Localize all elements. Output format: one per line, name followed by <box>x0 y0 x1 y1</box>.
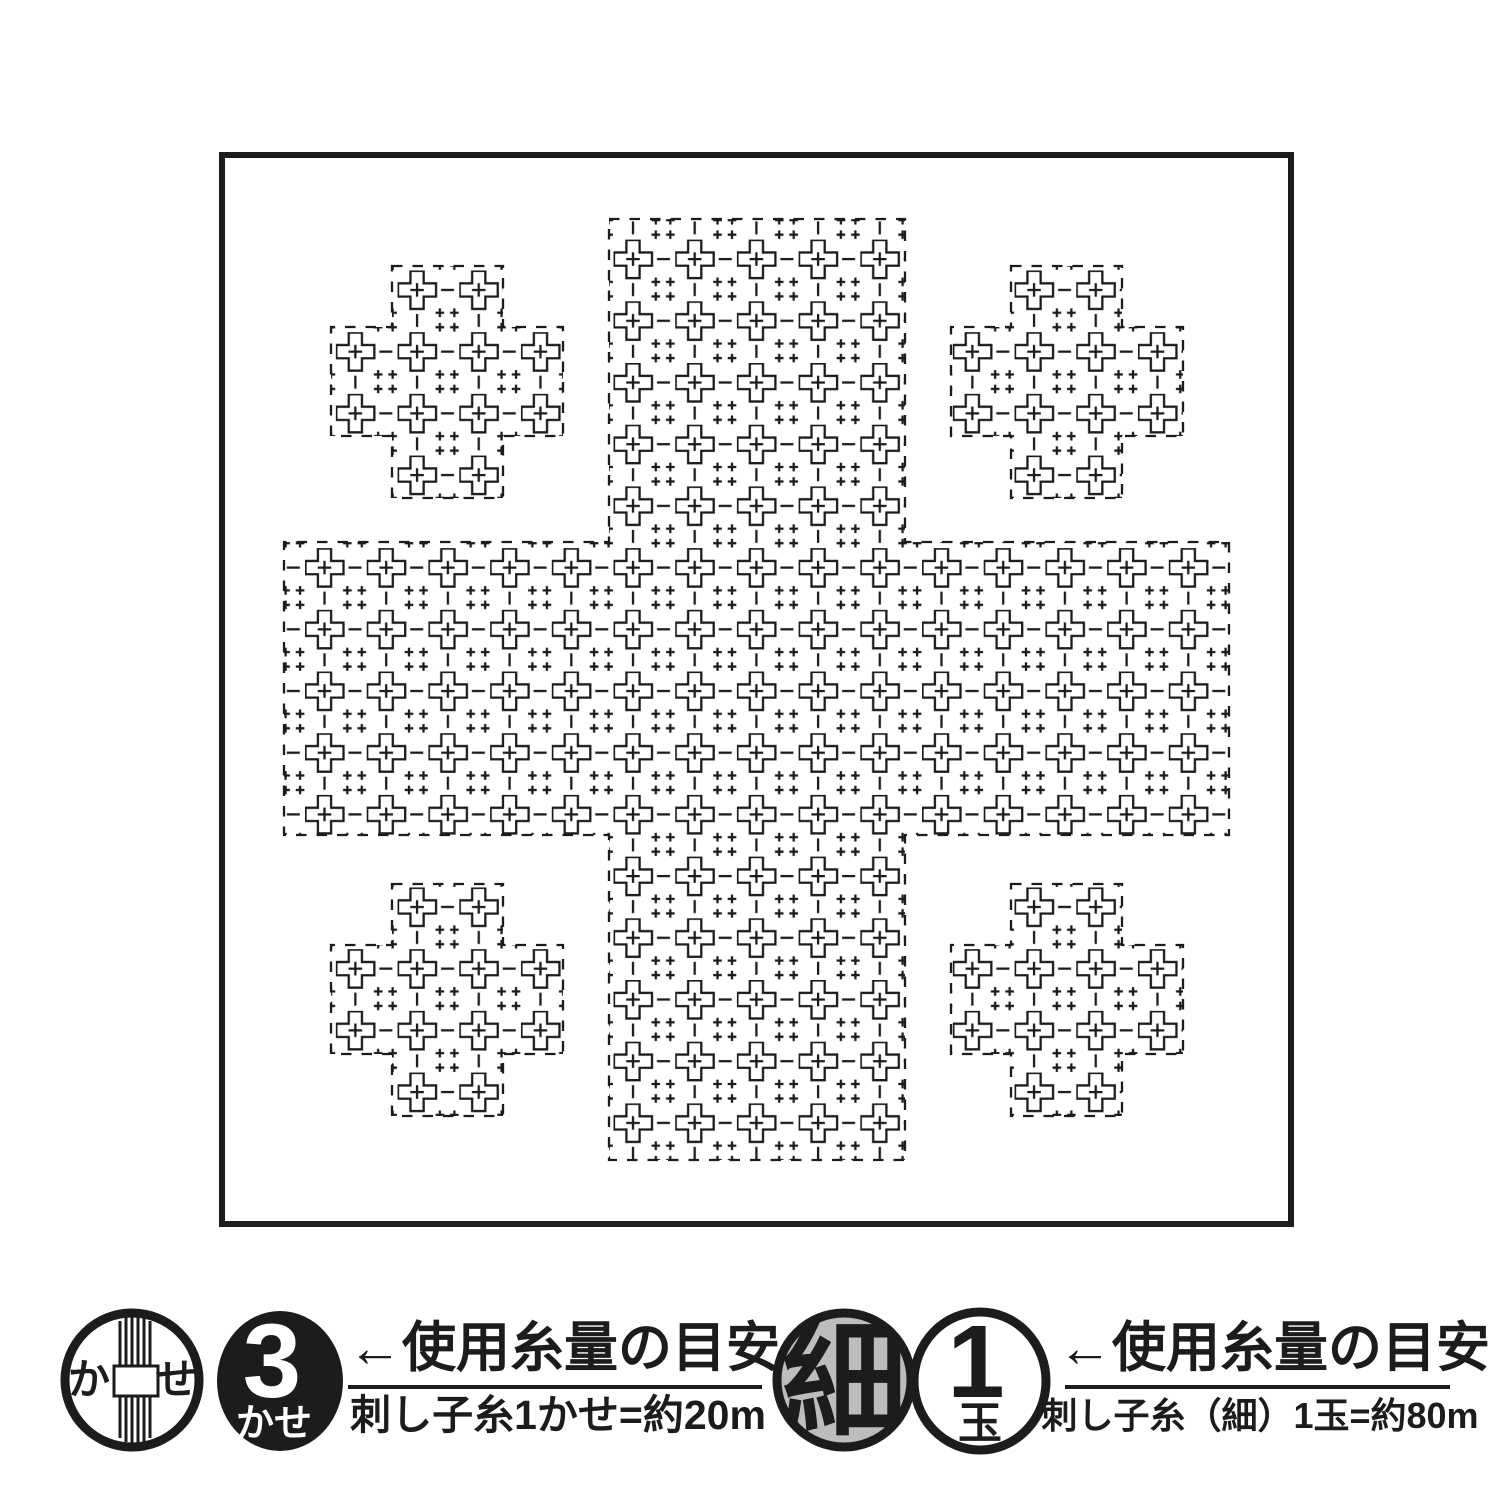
pattern-patch-top-left <box>331 266 563 498</box>
legend-thin-thread-group: 細 1 玉 ←使用糸量の目安 刺し子糸（細）1玉=約80m <box>777 1304 1490 1453</box>
skein-usage-label: ←使用糸量の目安 <box>348 1318 780 1378</box>
skein-count-unit: かせ <box>236 1403 312 1445</box>
skein-usage-note: 刺し子糸1かせ=約20m <box>350 1392 766 1438</box>
sashiko-pattern-sheet: か せ 3 かせ ←使用糸量の目安 刺し子糸1かせ=約20m 細 1 玉 ←使用… <box>0 0 1500 1500</box>
ball-usage-label: ←使用糸量の目安 <box>1058 1318 1490 1378</box>
pattern-patch-top-right <box>951 266 1183 498</box>
pattern-patch-bottom-left <box>331 884 563 1116</box>
legend-skein-group: か せ 3 かせ ←使用糸量の目安 刺し子糸1かせ=約20m <box>65 1303 780 1451</box>
skein-char-left: か <box>68 1356 110 1403</box>
skein-char-right: せ <box>155 1356 197 1403</box>
ball-usage-note: 刺し子糸（細）1玉=約80m <box>1041 1395 1478 1436</box>
pattern-patch-bottom-right <box>951 884 1183 1116</box>
ball-count-unit: 玉 <box>958 1399 1002 1448</box>
